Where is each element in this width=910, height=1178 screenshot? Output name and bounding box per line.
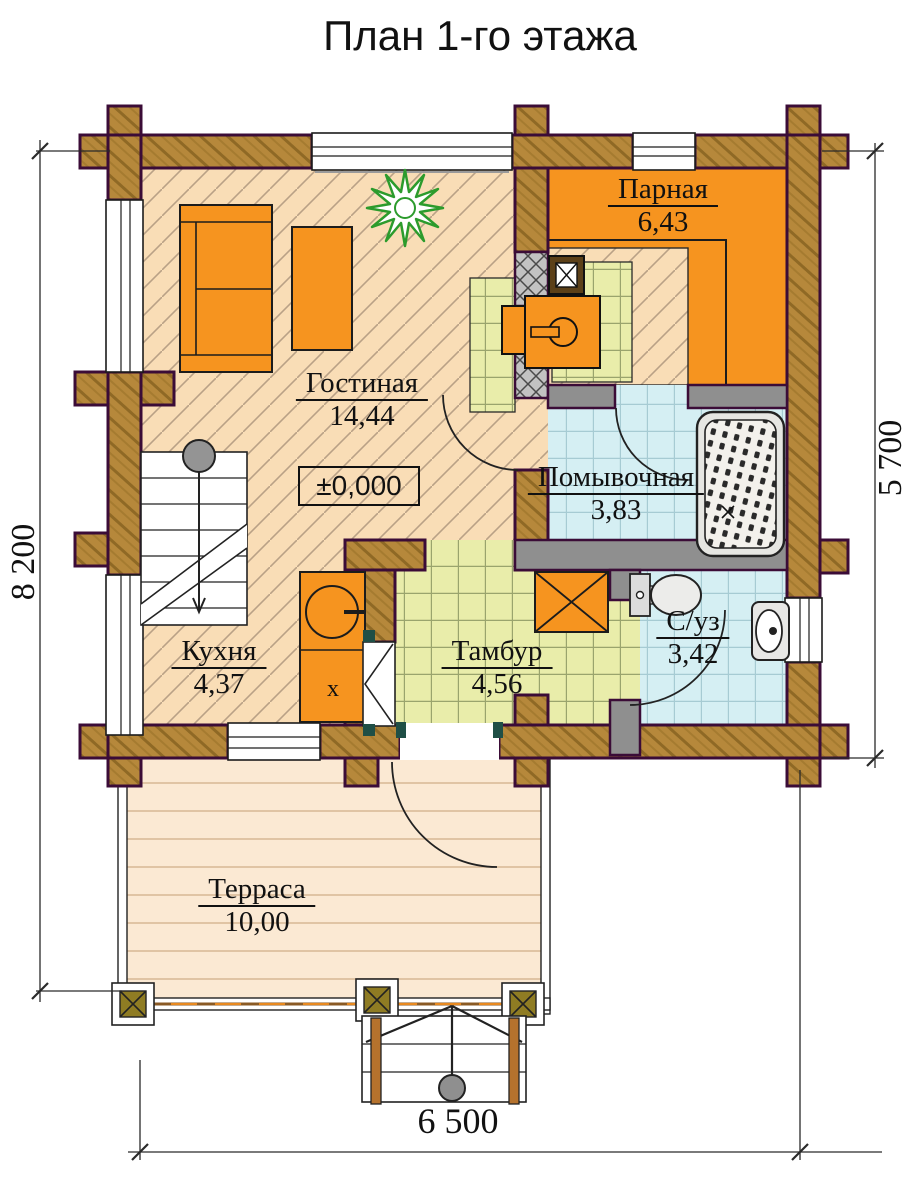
shower-tray	[697, 412, 784, 556]
room-area: 4,56	[442, 669, 553, 700]
room-label-terrasa: Терраса 10,00	[198, 874, 315, 939]
room-label-kuhnya: Кухня 4,37	[171, 636, 266, 701]
stairs	[141, 440, 247, 625]
page-title: План 1-го этажа	[50, 12, 910, 60]
room-label-suz: С/уз 3,42	[656, 606, 729, 671]
dimension-right: 5 700	[872, 420, 910, 497]
window	[106, 575, 143, 735]
room-label-parnaya: Парная 6,43	[608, 174, 718, 239]
room-area: 3,42	[656, 639, 729, 670]
room-label-gostinaya: Гостиная 14,44	[296, 368, 428, 433]
frame-partition	[610, 700, 640, 755]
railing-post	[356, 979, 398, 1021]
firebox	[502, 306, 525, 354]
stove-symbol: х	[327, 676, 339, 703]
room-name: Парная	[608, 174, 718, 207]
entrance-doorway	[396, 722, 503, 760]
terrace	[112, 758, 550, 1104]
room-name: Гостиная	[296, 368, 428, 401]
room-name: С/уз	[656, 606, 729, 639]
window	[785, 598, 822, 662]
railing-post	[112, 983, 154, 1025]
newel-post	[183, 440, 215, 472]
room-area: 10,00	[198, 907, 315, 938]
window	[228, 723, 320, 760]
room-name: Помывочная	[528, 462, 704, 495]
sofa	[180, 205, 272, 372]
frame-partition	[688, 385, 787, 408]
washbasin	[752, 602, 789, 660]
entrance-steps	[362, 1006, 526, 1104]
floor-plan-drawing	[0, 0, 910, 1178]
coffee-table	[292, 227, 352, 350]
room-name: Терраса	[198, 874, 315, 907]
folding-door	[363, 630, 395, 736]
dimension-left: 8 200	[5, 524, 43, 601]
direction-marker	[439, 1075, 465, 1101]
window	[312, 133, 512, 170]
room-area: 4,37	[171, 669, 266, 700]
porch-column	[371, 1018, 381, 1104]
window	[633, 133, 695, 170]
room-name: Тамбур	[442, 636, 553, 669]
frame-partition	[548, 385, 615, 408]
room-name: Кухня	[171, 636, 266, 669]
room-label-pomyvochnaya: Помывочная 3,83	[528, 462, 704, 527]
room-label-tambur: Тамбур 4,56	[442, 636, 553, 701]
water-heater-cabinet	[535, 572, 608, 632]
dimension-bottom: 6 500	[418, 1100, 499, 1142]
porch-column	[509, 1018, 519, 1104]
window	[106, 200, 143, 372]
room-area: 6,43	[608, 207, 718, 238]
room-area: 3,83	[528, 495, 704, 526]
elevation-mark: ±0,000	[298, 466, 420, 506]
floor-plan-page: План 1-го этажа Парная 6,43 Гостиная 14,…	[0, 0, 910, 1178]
room-area: 14,44	[296, 401, 428, 432]
